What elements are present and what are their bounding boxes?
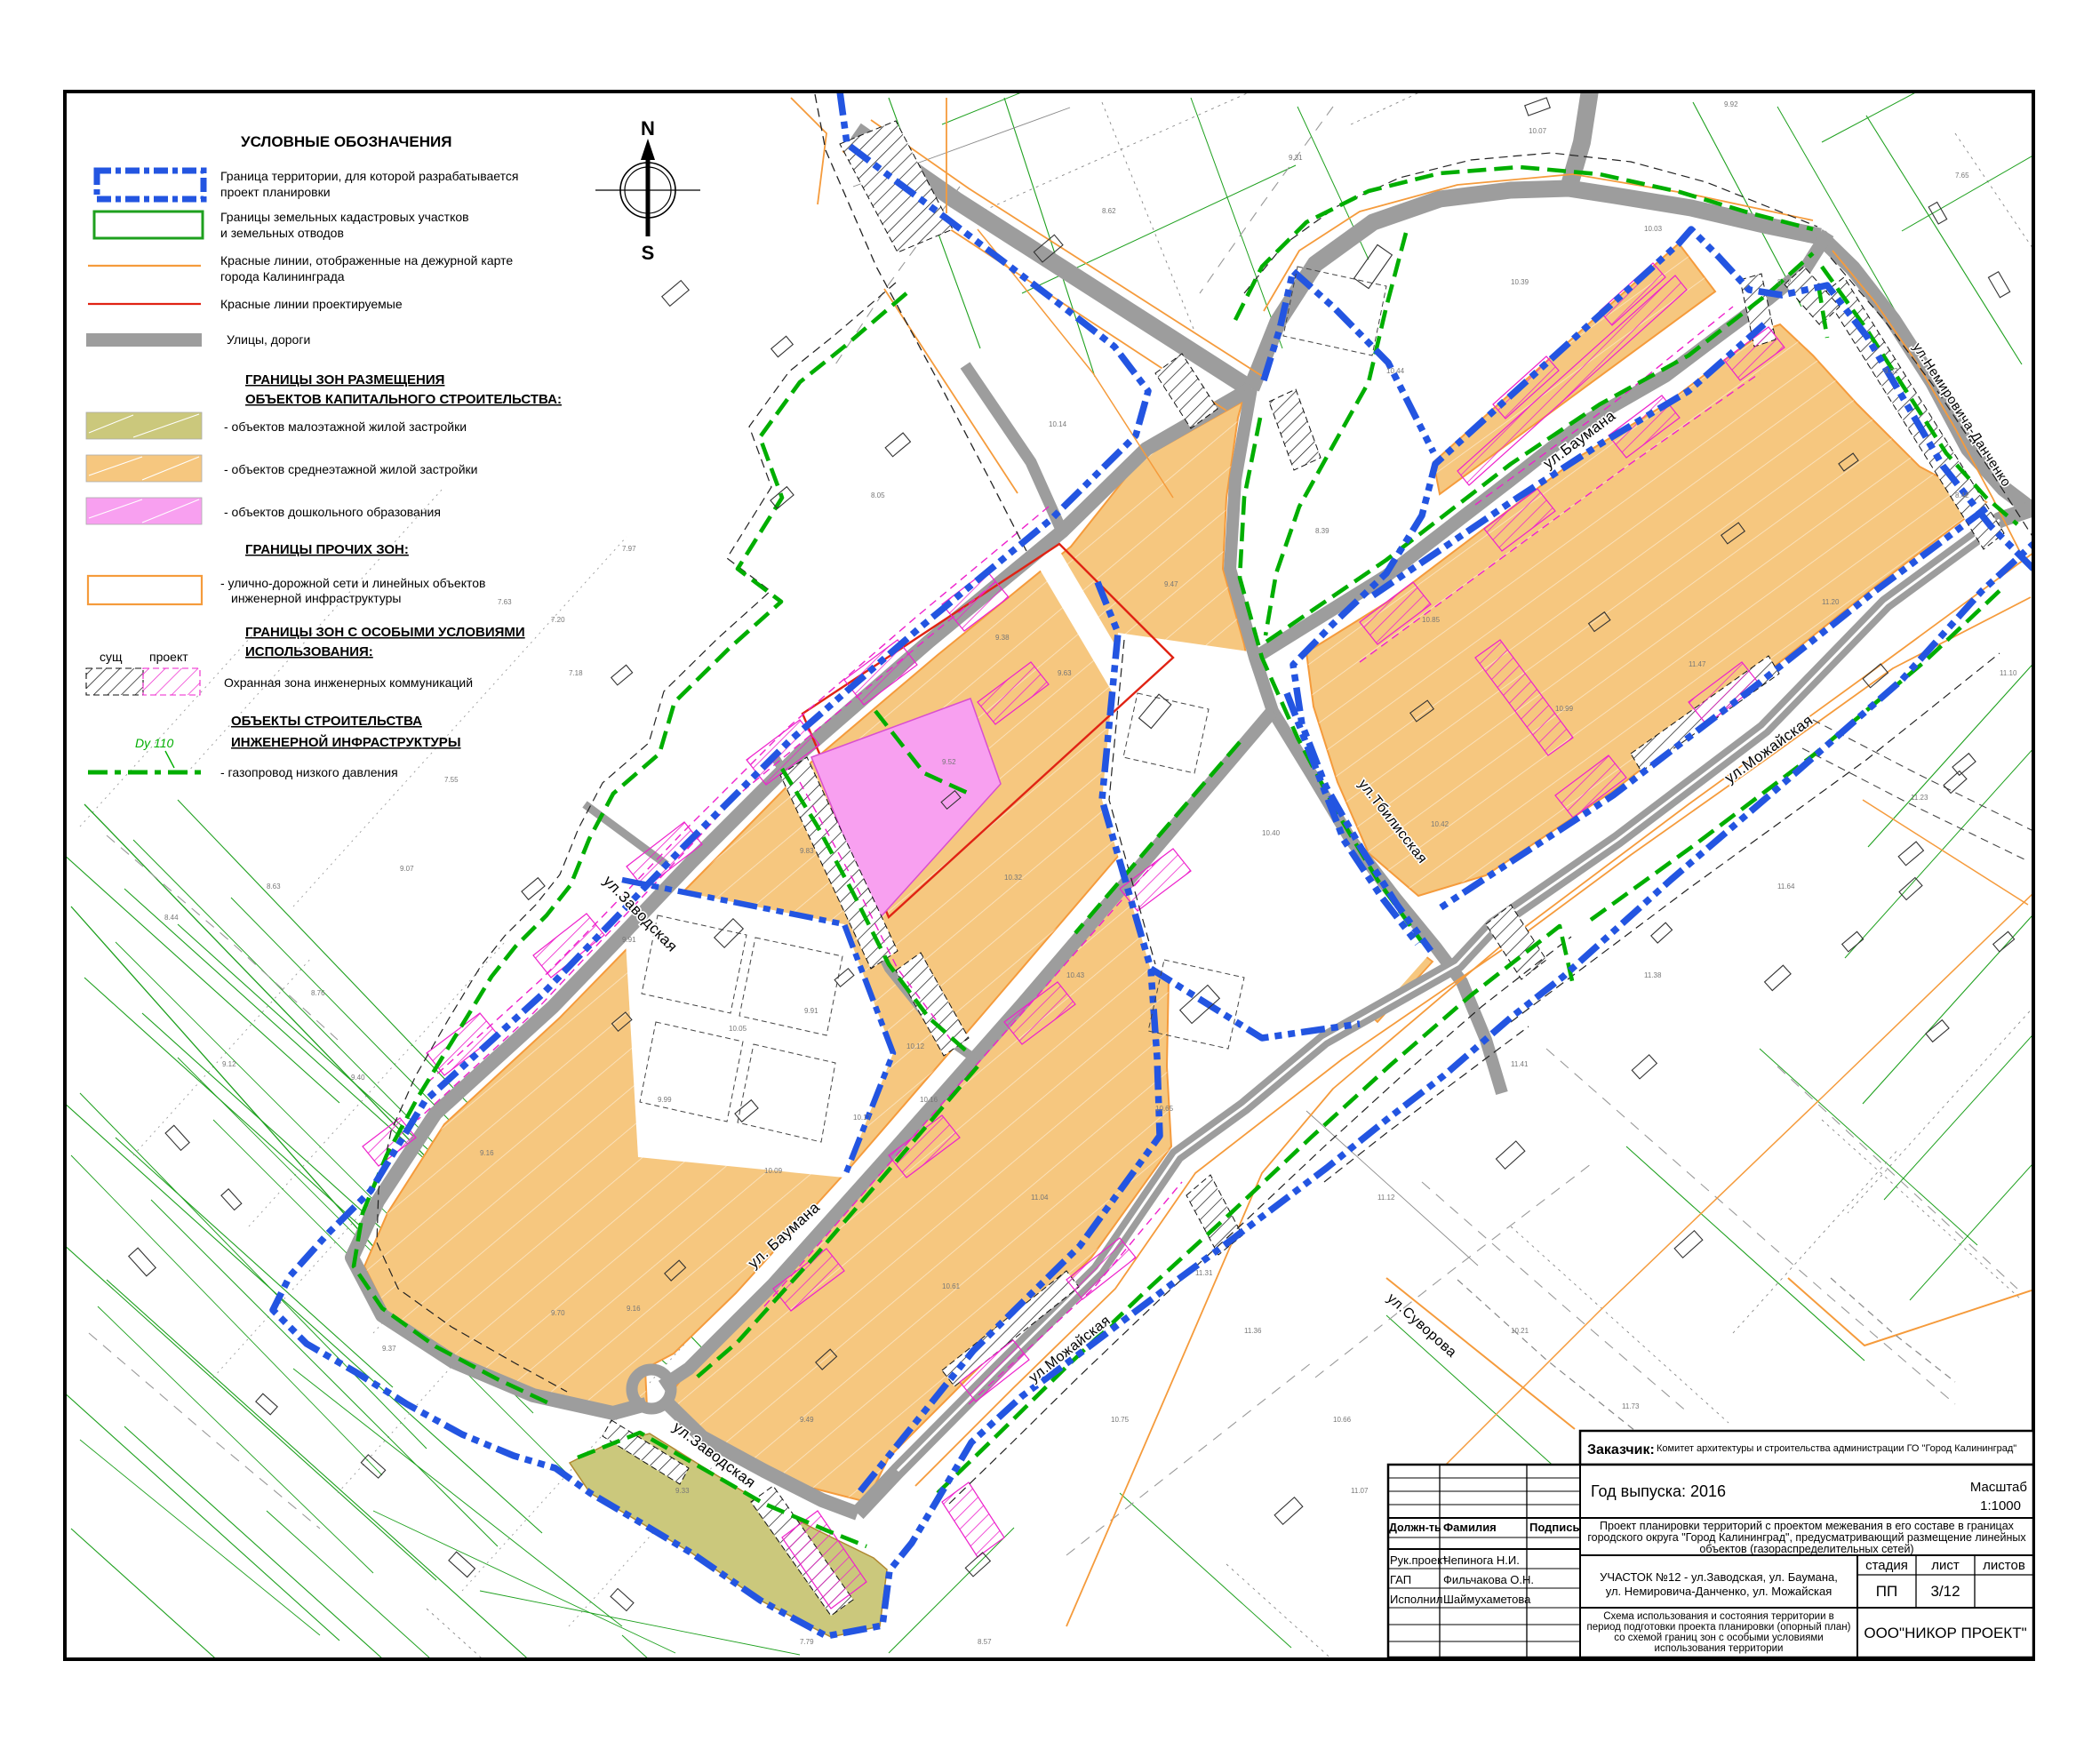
svg-text:ООО"НИКОР ПРОЕКТ": ООО"НИКОР ПРОЕКТ": [1864, 1625, 2026, 1641]
svg-text:Чепинога Н.И.: Чепинога Н.И.: [1443, 1553, 1520, 1567]
svg-text:10.14: 10.14: [1049, 420, 1067, 428]
svg-text:УЧАСТОК №12 - ул.Заводская, ул: УЧАСТОК №12 - ул.Заводская, ул. Баумана,: [1600, 1570, 1838, 1584]
svg-text:ГРАНИЦЫ ПРОЧИХ ЗОН:: ГРАНИЦЫ ПРОЧИХ ЗОН:: [245, 542, 409, 557]
svg-text:9.91: 9.91: [622, 936, 636, 944]
svg-text:ул. Немировича-Данченко, ул. М: ул. Немировича-Данченко, ул. Можайская: [1606, 1585, 1833, 1598]
svg-text:стадия: стадия: [1865, 1558, 1908, 1573]
svg-text:10.61: 10.61: [942, 1282, 961, 1290]
svg-text:ГРАНИЦЫ ЗОН С ОСОБЫМИ УСЛОВИЯМ: ГРАНИЦЫ ЗОН С ОСОБЫМИ УСЛОВИЯМИ: [245, 625, 525, 640]
svg-text:9.63: 9.63: [1058, 669, 1072, 677]
svg-text:10.03: 10.03: [1644, 225, 1663, 233]
svg-text:11.20: 11.20: [1822, 598, 1840, 606]
svg-text:8.57: 8.57: [978, 1638, 992, 1646]
svg-text:период подготовки проекта план: период подготовки проекта планировки (оп…: [1587, 1622, 1851, 1633]
svg-text:9.07: 9.07: [400, 865, 414, 873]
svg-text:11.41: 11.41: [1511, 1060, 1529, 1068]
svg-text:8.42: 8.42: [1955, 491, 1969, 499]
svg-text:11.04: 11.04: [1031, 1194, 1049, 1202]
svg-text:Dy 110: Dy 110: [135, 736, 174, 750]
svg-text:ИНЖЕНЕРНОЙ ИНФРАСТРУКТУРЫ: ИНЖЕНЕРНОЙ ИНФРАСТРУКТУРЫ: [231, 734, 461, 750]
svg-text:8.76: 8.76: [311, 989, 325, 997]
svg-text:проект планировки: проект планировки: [220, 185, 331, 199]
svg-text:9.70: 9.70: [551, 1309, 565, 1317]
svg-text:10.40: 10.40: [1262, 829, 1281, 837]
svg-text:Схема использования и состояни: Схема использования и состояния территор…: [1603, 1611, 1834, 1622]
svg-text:10.99: 10.99: [1555, 705, 1574, 713]
svg-text:7.79: 7.79: [800, 1638, 814, 1646]
svg-text:9.16: 9.16: [480, 1149, 494, 1157]
svg-text:Должн-ть: Должн-ть: [1389, 1521, 1441, 1534]
svg-text:9.16: 9.16: [627, 1305, 641, 1313]
svg-text:S: S: [642, 242, 655, 264]
svg-text:Масштаб: Масштаб: [1970, 1480, 2027, 1495]
svg-text:Красные линии, отображенные на: Красные линии, отображенные на дежурной …: [220, 253, 513, 268]
svg-text:7.20: 7.20: [551, 616, 565, 624]
svg-text:11.07: 11.07: [1351, 1487, 1369, 1495]
svg-text:Фильчакова О.Н.: Фильчакова О.Н.: [1443, 1573, 1534, 1586]
svg-text:Комитет архитектуры и строител: Комитет архитектуры и строительства адми…: [1657, 1443, 2016, 1454]
svg-text:инженерной инфраструктуры: инженерной инфраструктуры: [231, 591, 401, 605]
svg-text:9.31: 9.31: [1289, 154, 1303, 162]
svg-text:9.49: 9.49: [800, 1416, 814, 1424]
svg-text:9.92: 9.92: [1724, 100, 1738, 108]
svg-text:сущ: сущ: [100, 650, 123, 664]
svg-text:10.07: 10.07: [1529, 127, 1547, 135]
svg-text:и земельных отводов: и земельных отводов: [220, 226, 344, 240]
svg-text:8.62: 8.62: [1102, 207, 1116, 215]
svg-text:1:1000: 1:1000: [1980, 1498, 2021, 1513]
svg-text:ОБЪЕКТЫ СТРОИТЕЛЬСТВА: ОБЪЕКТЫ СТРОИТЕЛЬСТВА: [231, 714, 422, 729]
svg-text:Подпись: Подпись: [1529, 1521, 1579, 1534]
svg-text:- улично-дорожной сети и линей: - улично-дорожной сети и линейных объект…: [220, 576, 485, 590]
svg-text:Границы земельных кадастровых: Границы земельных кадастровых участков: [220, 210, 469, 224]
svg-text:9.99: 9.99: [658, 1096, 672, 1104]
svg-text:10.39: 10.39: [1511, 278, 1529, 286]
svg-text:7.97: 7.97: [622, 545, 636, 553]
svg-text:11.73: 11.73: [1622, 1402, 1640, 1410]
svg-text:11.36: 11.36: [1244, 1327, 1262, 1335]
svg-text:Граница территории, для которо: Граница территории, для которой разрабат…: [220, 169, 518, 183]
svg-text:со схемой границ зон с особыми: со схемой границ зон с особыми условиями: [1614, 1633, 1823, 1643]
svg-text:Охранная зона инженерных комму: Охранная зона инженерных коммуникаций: [224, 675, 473, 690]
svg-text:городского округа "Город Калин: городского округа "Город Калининград", п…: [1587, 1531, 2026, 1544]
svg-text:ИСПОЛЬЗОВАНИЯ:: ИСПОЛЬЗОВАНИЯ:: [245, 644, 373, 659]
svg-text:7.63: 7.63: [498, 598, 512, 606]
svg-text:10.42: 10.42: [1431, 820, 1449, 828]
svg-text:ПП: ПП: [1876, 1583, 1897, 1600]
svg-text:10.43: 10.43: [1066, 971, 1085, 979]
svg-text:9.33: 9.33: [675, 1487, 690, 1495]
svg-text:10.32: 10.32: [1004, 874, 1023, 882]
svg-text:11.12: 11.12: [1377, 1194, 1395, 1202]
svg-text:10.85: 10.85: [1422, 616, 1441, 624]
svg-text:8.12: 8.12: [1777, 278, 1792, 286]
svg-text:9.91: 9.91: [804, 1007, 818, 1015]
svg-text:8.39: 8.39: [1315, 527, 1329, 535]
svg-text:N: N: [641, 117, 655, 140]
svg-text:11.31: 11.31: [1195, 1269, 1213, 1277]
svg-text:проект: проект: [149, 650, 188, 664]
svg-text:- объектов дошкольного образов: - объектов дошкольного образования: [224, 505, 441, 519]
svg-text:9.37: 9.37: [382, 1345, 396, 1353]
svg-text:Рук.проект: Рук.проект: [1390, 1553, 1448, 1567]
svg-text:10.12: 10.12: [906, 1042, 925, 1050]
svg-text:10.66: 10.66: [1333, 1416, 1352, 1424]
svg-text:- объектов среднеэтажной жилой: - объектов среднеэтажной жилой застройки: [224, 462, 477, 476]
svg-text:УСЛОВНЫЕ ОБОЗНАЧЕНИЯ: УСЛОВНЫЕ ОБОЗНАЧЕНИЯ: [241, 133, 451, 150]
svg-text:9.38: 9.38: [995, 634, 1010, 642]
svg-text:9.32: 9.32: [1884, 367, 1898, 375]
svg-text:9.40: 9.40: [351, 1074, 365, 1082]
svg-text:9.52: 9.52: [942, 758, 956, 766]
svg-text:10.16: 10.16: [920, 1096, 938, 1104]
svg-text:листов: листов: [1983, 1558, 2025, 1573]
svg-text:8.05: 8.05: [871, 491, 885, 499]
svg-text:лист: лист: [1931, 1558, 1960, 1573]
svg-text:11.23: 11.23: [1911, 794, 1928, 802]
svg-text:- газопровод низкого давления: - газопровод низкого давления: [220, 765, 398, 779]
svg-text:9.47: 9.47: [1164, 580, 1178, 588]
svg-text:ГРАНИЦЫ ЗОН РАЗМЕЩЕНИЯ: ГРАНИЦЫ ЗОН РАЗМЕЩЕНИЯ: [245, 372, 444, 387]
svg-text:ГАП: ГАП: [1390, 1573, 1411, 1586]
svg-text:10.09: 10.09: [764, 1167, 783, 1175]
svg-text:объектов (газораспределительны: объектов (газораспределительных сетей): [1699, 1543, 1913, 1555]
svg-text:Заказчик:: Заказчик:: [1587, 1442, 1655, 1457]
svg-text:8.63: 8.63: [267, 882, 281, 890]
svg-text:Улицы, дороги: Улицы, дороги: [227, 332, 310, 347]
svg-text:10.75: 10.75: [1111, 1416, 1130, 1424]
svg-text:9.83: 9.83: [800, 847, 814, 855]
svg-text:Фамилия: Фамилия: [1443, 1521, 1497, 1534]
svg-text:10.21: 10.21: [1511, 1327, 1529, 1335]
svg-text:10.05: 10.05: [729, 1025, 747, 1033]
svg-text:Год выпуска: 2016: Год выпуска: 2016: [1591, 1482, 1726, 1500]
svg-text:- объектов малоэтажной жилой з: - объектов малоэтажной жилой застройки: [224, 419, 467, 434]
svg-text:7.18: 7.18: [569, 669, 583, 677]
svg-text:11.10: 11.10: [2000, 669, 2017, 677]
svg-text:ОБЪЕКТОВ КАПИТАЛЬНОГО СТРОИТЕЛ: ОБЪЕКТОВ КАПИТАЛЬНОГО СТРОИТЕЛЬСТВА:: [245, 392, 562, 407]
svg-text:10.44: 10.44: [1386, 367, 1405, 375]
svg-text:10.65: 10.65: [1155, 1105, 1174, 1113]
svg-text:использования территории: использования территории: [1655, 1643, 1784, 1654]
svg-text:8.44: 8.44: [164, 914, 179, 922]
svg-text:9.12: 9.12: [222, 1060, 236, 1068]
svg-text:Проект планировки территорий с: Проект планировки территорий с проектом …: [1600, 1520, 2015, 1532]
svg-text:11.47: 11.47: [1689, 660, 1706, 668]
svg-text:города Калининграда: города Калининграда: [220, 269, 345, 284]
svg-text:Красные линии проектируемые: Красные линии проектируемые: [220, 297, 403, 311]
svg-text:Исполнил: Исполнил: [1390, 1593, 1442, 1606]
svg-text:Шаймухаметова: Шаймухаметова: [1443, 1593, 1531, 1606]
svg-text:7.55: 7.55: [444, 776, 459, 784]
svg-text:3/12: 3/12: [1930, 1583, 1960, 1600]
svg-text:10.17: 10.17: [853, 1114, 872, 1122]
svg-text:11.38: 11.38: [1644, 971, 1662, 979]
svg-text:11.64: 11.64: [1777, 882, 1795, 890]
svg-text:7.65: 7.65: [1955, 172, 1969, 180]
